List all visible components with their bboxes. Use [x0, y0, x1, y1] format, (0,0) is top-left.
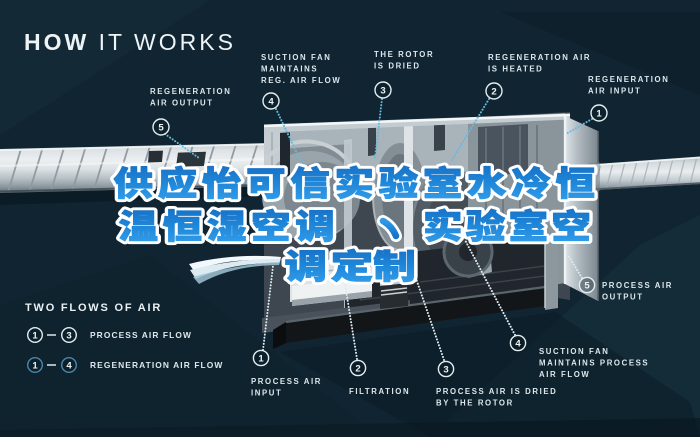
svg-text:5: 5 [158, 122, 164, 133]
svg-text:1: 1 [32, 330, 38, 341]
svg-text:TWO FLOWS OF AIR: TWO FLOWS OF AIR [25, 302, 162, 314]
svg-text:3: 3 [380, 85, 385, 96]
svg-text:3: 3 [66, 330, 71, 341]
svg-text:2: 2 [491, 86, 496, 97]
svg-text:1: 1 [32, 360, 38, 371]
svg-text:1: 1 [596, 108, 602, 119]
svg-text:4: 4 [268, 96, 274, 107]
svg-text:5: 5 [584, 280, 590, 291]
svg-text:REGENERATION AIR FLOW: REGENERATION AIR FLOW [90, 360, 223, 370]
svg-text:3: 3 [443, 364, 448, 375]
svg-text:4: 4 [515, 338, 521, 349]
svg-text:HOW IT WORKS: HOW IT WORKS [24, 29, 236, 55]
svg-text:PROCESS AIR FLOW: PROCESS AIR FLOW [90, 330, 192, 340]
svg-text:2: 2 [355, 363, 360, 374]
svg-text:4: 4 [66, 360, 72, 371]
svg-text:FILTRATION: FILTRATION [349, 387, 410, 396]
svg-text:1: 1 [258, 353, 264, 364]
